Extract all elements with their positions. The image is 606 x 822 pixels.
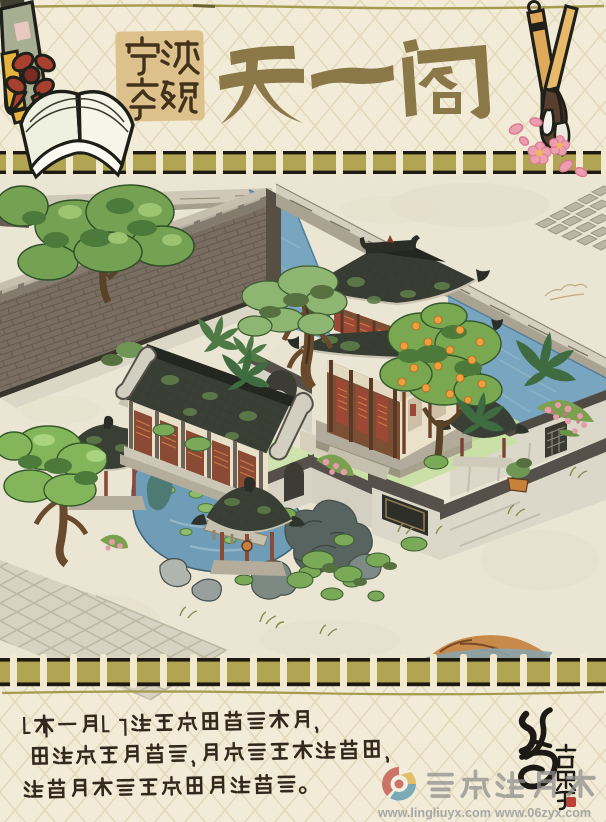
- svg-text:www.06zyx.com: www.06zyx.com: [494, 806, 591, 820]
- svg-text:www.lingliuyx.com: www.lingliuyx.com: [377, 806, 491, 820]
